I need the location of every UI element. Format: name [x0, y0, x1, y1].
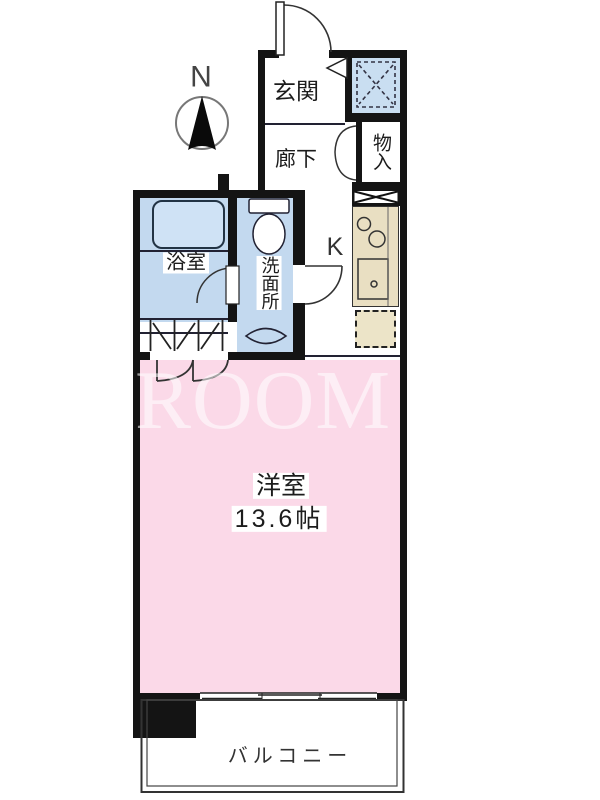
room-size-western-room: 13.6帖: [232, 506, 327, 532]
wall-washroom-right-upper: [293, 197, 305, 265]
washroom-door-icon: [305, 266, 342, 304]
storage-door-icon: [335, 126, 356, 180]
room-label-storage: 物入: [370, 133, 390, 171]
wall-room-top-mid: [228, 352, 305, 360]
kitchen-room-boundary: [305, 355, 400, 357]
wall-bottom-right: [377, 693, 407, 701]
wall-stub: [218, 174, 229, 191]
room-label-bathroom: 浴室: [163, 253, 209, 274]
wall-top-right-of-door: [329, 50, 407, 58]
watermark: ROOM COR: [135, 361, 407, 441]
wall-bath-divider-lower: [228, 303, 237, 322]
room-label-washroom: 洗面所: [257, 256, 282, 310]
room-label-entrance: 玄関: [273, 79, 319, 103]
closet-top-line: [140, 318, 228, 320]
entrance-step-line: [265, 123, 345, 125]
entrance-door-icon: [276, 2, 331, 55]
wall-entrance-left: [258, 50, 265, 190]
refrigerator-space: [355, 310, 396, 348]
kitchen-window-frame: [352, 188, 400, 206]
compass-icon: [176, 96, 228, 150]
bathtub: [152, 200, 225, 249]
room-label-hallway: 廊下: [275, 149, 317, 171]
closet-mid-line: [140, 332, 228, 334]
wall-bath-block-top: [133, 190, 305, 198]
entrance-step-marker: [327, 58, 347, 78]
wall-room-top-left: [133, 352, 150, 360]
kitchen-counter: [352, 206, 399, 307]
meter-box-area: [352, 57, 400, 113]
wall-meterbox-left: [345, 57, 352, 117]
floor-plan: N 玄関 廊下 物入 K 浴室 洗面所 洋室 13.6帖 バルコニー ROOM …: [0, 0, 600, 800]
balcony-window-icon: [200, 693, 377, 700]
wall-storage-left: [356, 122, 362, 184]
room-label-balcony: バルコニー: [228, 747, 353, 768]
closet-hatch-icon: [151, 320, 223, 351]
room-label-kitchen: K: [327, 234, 344, 260]
room-label-western-room: 洋室: [253, 473, 309, 499]
compass-north-label: N: [190, 61, 212, 93]
wall-corner-block: [133, 700, 196, 738]
wall-left: [133, 190, 140, 700]
wall-bath-divider-upper: [228, 197, 237, 267]
wall-meterbox-bottom: [345, 113, 407, 122]
